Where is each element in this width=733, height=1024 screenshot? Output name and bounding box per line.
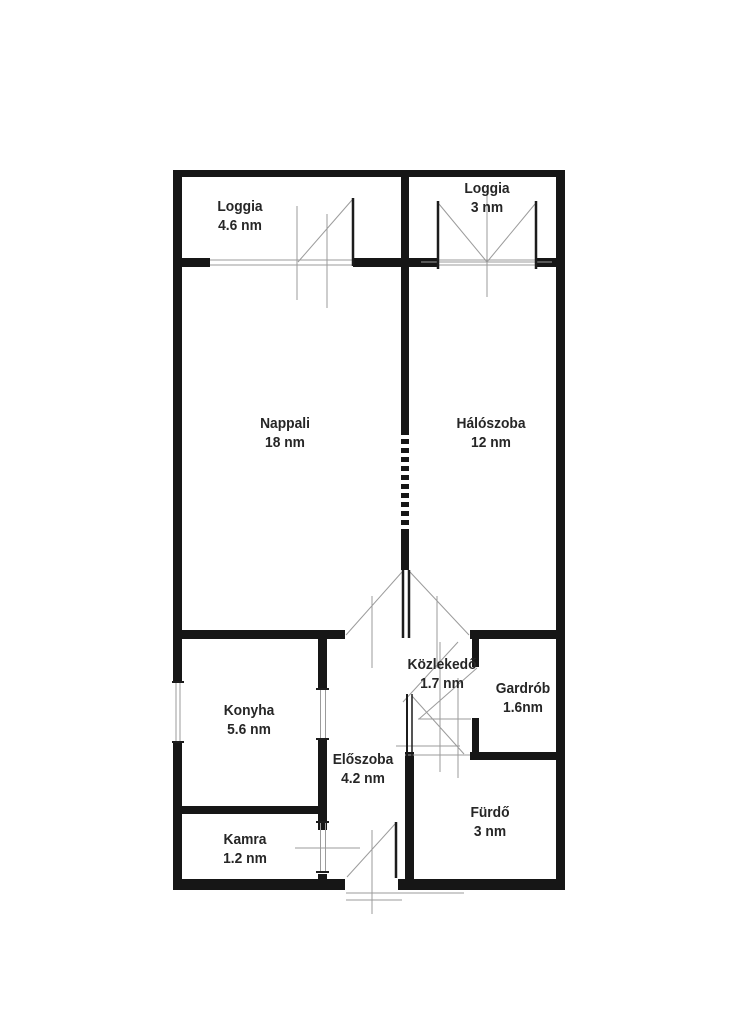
room-label-furdo: Fürdő 3 nm <box>470 803 509 841</box>
room-name: Közlekedő <box>407 655 476 674</box>
room-area: 1.6nm <box>496 698 550 717</box>
room-area: 1.7 nm <box>407 674 476 693</box>
room-area: 1.2 nm <box>223 849 267 868</box>
room-label-loggia-right: Loggia 3 nm <box>464 179 509 217</box>
window-icon <box>172 682 184 742</box>
room-area: 4.2 nm <box>333 769 394 788</box>
room-name: Nappali <box>260 414 310 433</box>
room-label-kozlekedo: Közlekedő 1.7 nm <box>407 655 476 693</box>
room-label-konyha: Konyha 5.6 nm <box>224 701 275 739</box>
room-area: 5.6 nm <box>224 720 275 739</box>
room-label-eloszoba: Előszoba 4.2 nm <box>333 750 394 788</box>
room-label-haloszoba: Hálószoba 12 nm <box>456 414 525 452</box>
room-area: 4.6 nm <box>217 216 262 235</box>
room-area: 3 nm <box>470 822 509 841</box>
room-label-loggia-left: Loggia 4.6 nm <box>217 197 262 235</box>
door-opening-icon <box>295 822 360 872</box>
room-area: 18 nm <box>260 433 310 452</box>
room-name: Loggia <box>217 197 262 216</box>
room-name: Kamra <box>223 830 267 849</box>
floor-plan: Loggia 4.6 nm Loggia 3 nm Nappali 18 nm … <box>0 0 733 1024</box>
room-name: Fürdő <box>470 803 509 822</box>
room-area: 3 nm <box>464 198 509 217</box>
room-label-gardrob: Gardrób 1.6nm <box>496 679 550 717</box>
room-name: Hálószoba <box>456 414 525 433</box>
room-name: Loggia <box>464 179 509 198</box>
room-name: Konyha <box>224 701 275 720</box>
room-name: Gardrób <box>496 679 550 698</box>
double-door-icon <box>346 570 469 668</box>
door-opening-icon <box>316 689 329 739</box>
room-area: 12 nm <box>456 433 525 452</box>
room-label-nappali: Nappali 18 nm <box>260 414 310 452</box>
floorplan-symbols <box>0 0 733 1024</box>
room-name: Előszoba <box>333 750 394 769</box>
room-label-kamra: Kamra 1.2 nm <box>223 830 267 868</box>
entrance-door-icon <box>346 822 464 914</box>
